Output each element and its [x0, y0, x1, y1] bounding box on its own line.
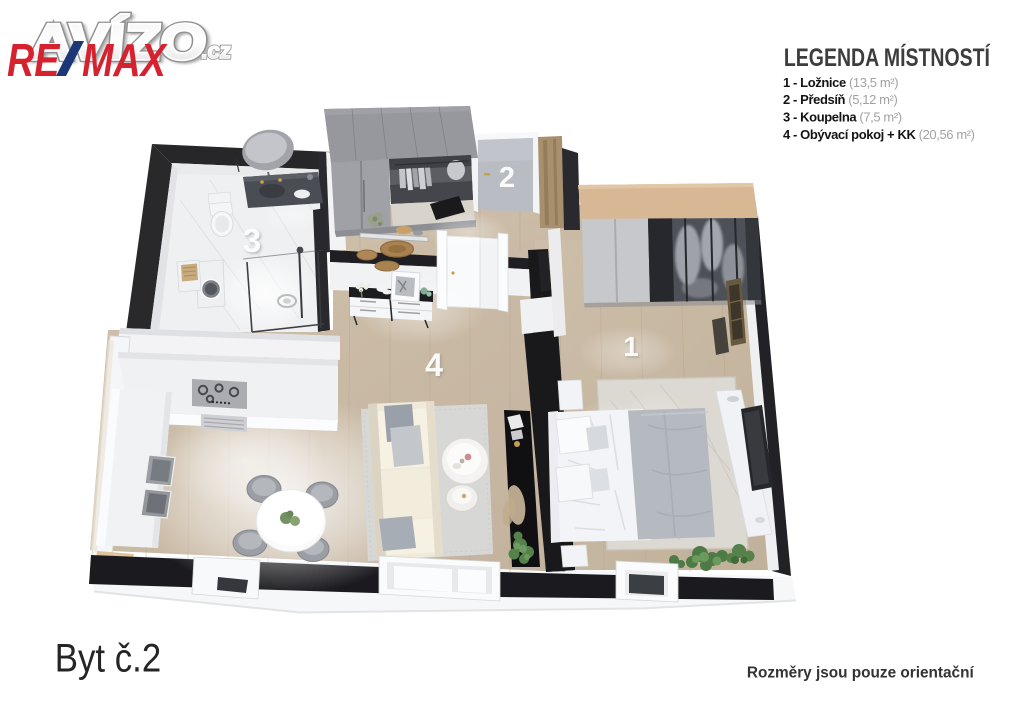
svg-text:4: 4	[425, 347, 443, 383]
svg-text:1: 1	[623, 331, 639, 362]
svg-text:3 - Koupelna (7,5 m²): 3 - Koupelna (7,5 m²)	[783, 110, 902, 125]
svg-text:Rozměry jsou pouze orientační: Rozměry jsou pouze orientační	[747, 664, 974, 681]
svg-text:3: 3	[243, 222, 261, 259]
svg-text:Byt č.2: Byt č.2	[55, 635, 161, 680]
svg-text:.cz: .cz	[200, 38, 232, 63]
svg-text:2 - Předsíň (5,12 m²): 2 - Předsíň (5,12 m²)	[783, 92, 897, 107]
svg-text:RE: RE	[7, 34, 61, 85]
svg-text:2: 2	[499, 162, 515, 194]
svg-text:MAX: MAX	[82, 34, 168, 85]
svg-text:4 - Obývací pokoj + KK (20,56: 4 - Obývací pokoj + KK (20,56 m²)	[783, 127, 975, 142]
svg-text:1 - Ložnice (13,5 m²): 1 - Ložnice (13,5 m²)	[783, 75, 898, 90]
svg-text:LEGENDA MÍSTNOSTÍ: LEGENDA MÍSTNOSTÍ	[784, 44, 991, 72]
